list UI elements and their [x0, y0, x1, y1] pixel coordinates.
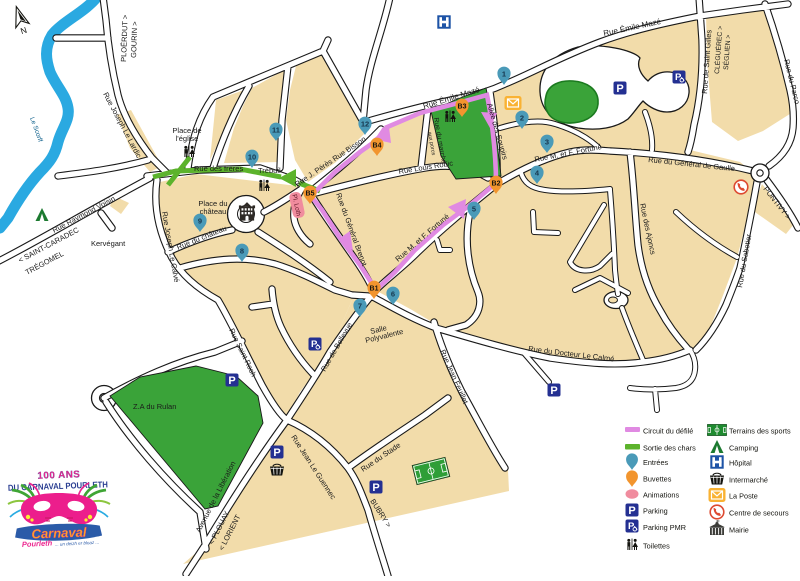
svg-text:B1: B1 — [370, 286, 379, 293]
svg-text:7: 7 — [358, 302, 362, 311]
svg-text:Parking: Parking — [643, 507, 668, 516]
svg-text:Circuit du défilé: Circuit du défilé — [643, 427, 693, 436]
svg-text:B2: B2 — [492, 181, 501, 188]
svg-text:9: 9 — [198, 217, 202, 226]
svg-text:B3: B3 — [458, 104, 467, 111]
svg-text:8: 8 — [240, 247, 244, 256]
svg-text:Sortie des chars: Sortie des chars — [643, 444, 696, 453]
svg-text:Terrains des sports: Terrains des sports — [729, 427, 791, 436]
svg-text:l'église: l'église — [176, 134, 199, 143]
svg-text:Rue des frères: Rue des frères — [194, 164, 243, 173]
svg-text:Camping: Camping — [729, 444, 758, 453]
svg-text:5: 5 — [472, 205, 476, 214]
svg-text:PLOËRDUT >: PLOËRDUT > — [119, 14, 130, 62]
svg-text:Centre de secours: Centre de secours — [729, 509, 789, 518]
svg-text:1: 1 — [502, 70, 506, 79]
svg-text:10: 10 — [248, 153, 256, 162]
svg-text:Kervégant: Kervégant — [91, 239, 126, 248]
svg-text:Z.A du Rulan: Z.A du Rulan — [133, 402, 176, 411]
svg-text:Toilettes: Toilettes — [643, 542, 670, 551]
svg-text:11: 11 — [272, 126, 280, 135]
svg-text:Hôpital: Hôpital — [729, 459, 752, 468]
svg-text:Buvettes: Buvettes — [643, 475, 672, 484]
svg-text:Trébuil: Trébuil — [258, 166, 281, 175]
svg-text:B4: B4 — [373, 143, 382, 150]
svg-text:2: 2 — [520, 114, 524, 123]
svg-text:B5: B5 — [306, 191, 315, 198]
svg-text:Pourleth: Pourleth — [22, 538, 53, 549]
svg-text:Entrées: Entrées — [643, 458, 668, 467]
svg-text:Parking PMR: Parking PMR — [643, 523, 686, 532]
svg-text:château: château — [200, 207, 227, 216]
svg-text:GOURIN >: GOURIN > — [129, 21, 139, 58]
svg-text:6: 6 — [391, 290, 395, 299]
svg-text:3: 3 — [545, 138, 549, 147]
svg-text:Animations: Animations — [643, 491, 679, 500]
svg-text:Intermarché: Intermarché — [729, 476, 768, 485]
svg-text:Mairie: Mairie — [729, 526, 749, 535]
svg-text:12: 12 — [361, 120, 369, 129]
svg-text:La Poste: La Poste — [729, 492, 758, 501]
